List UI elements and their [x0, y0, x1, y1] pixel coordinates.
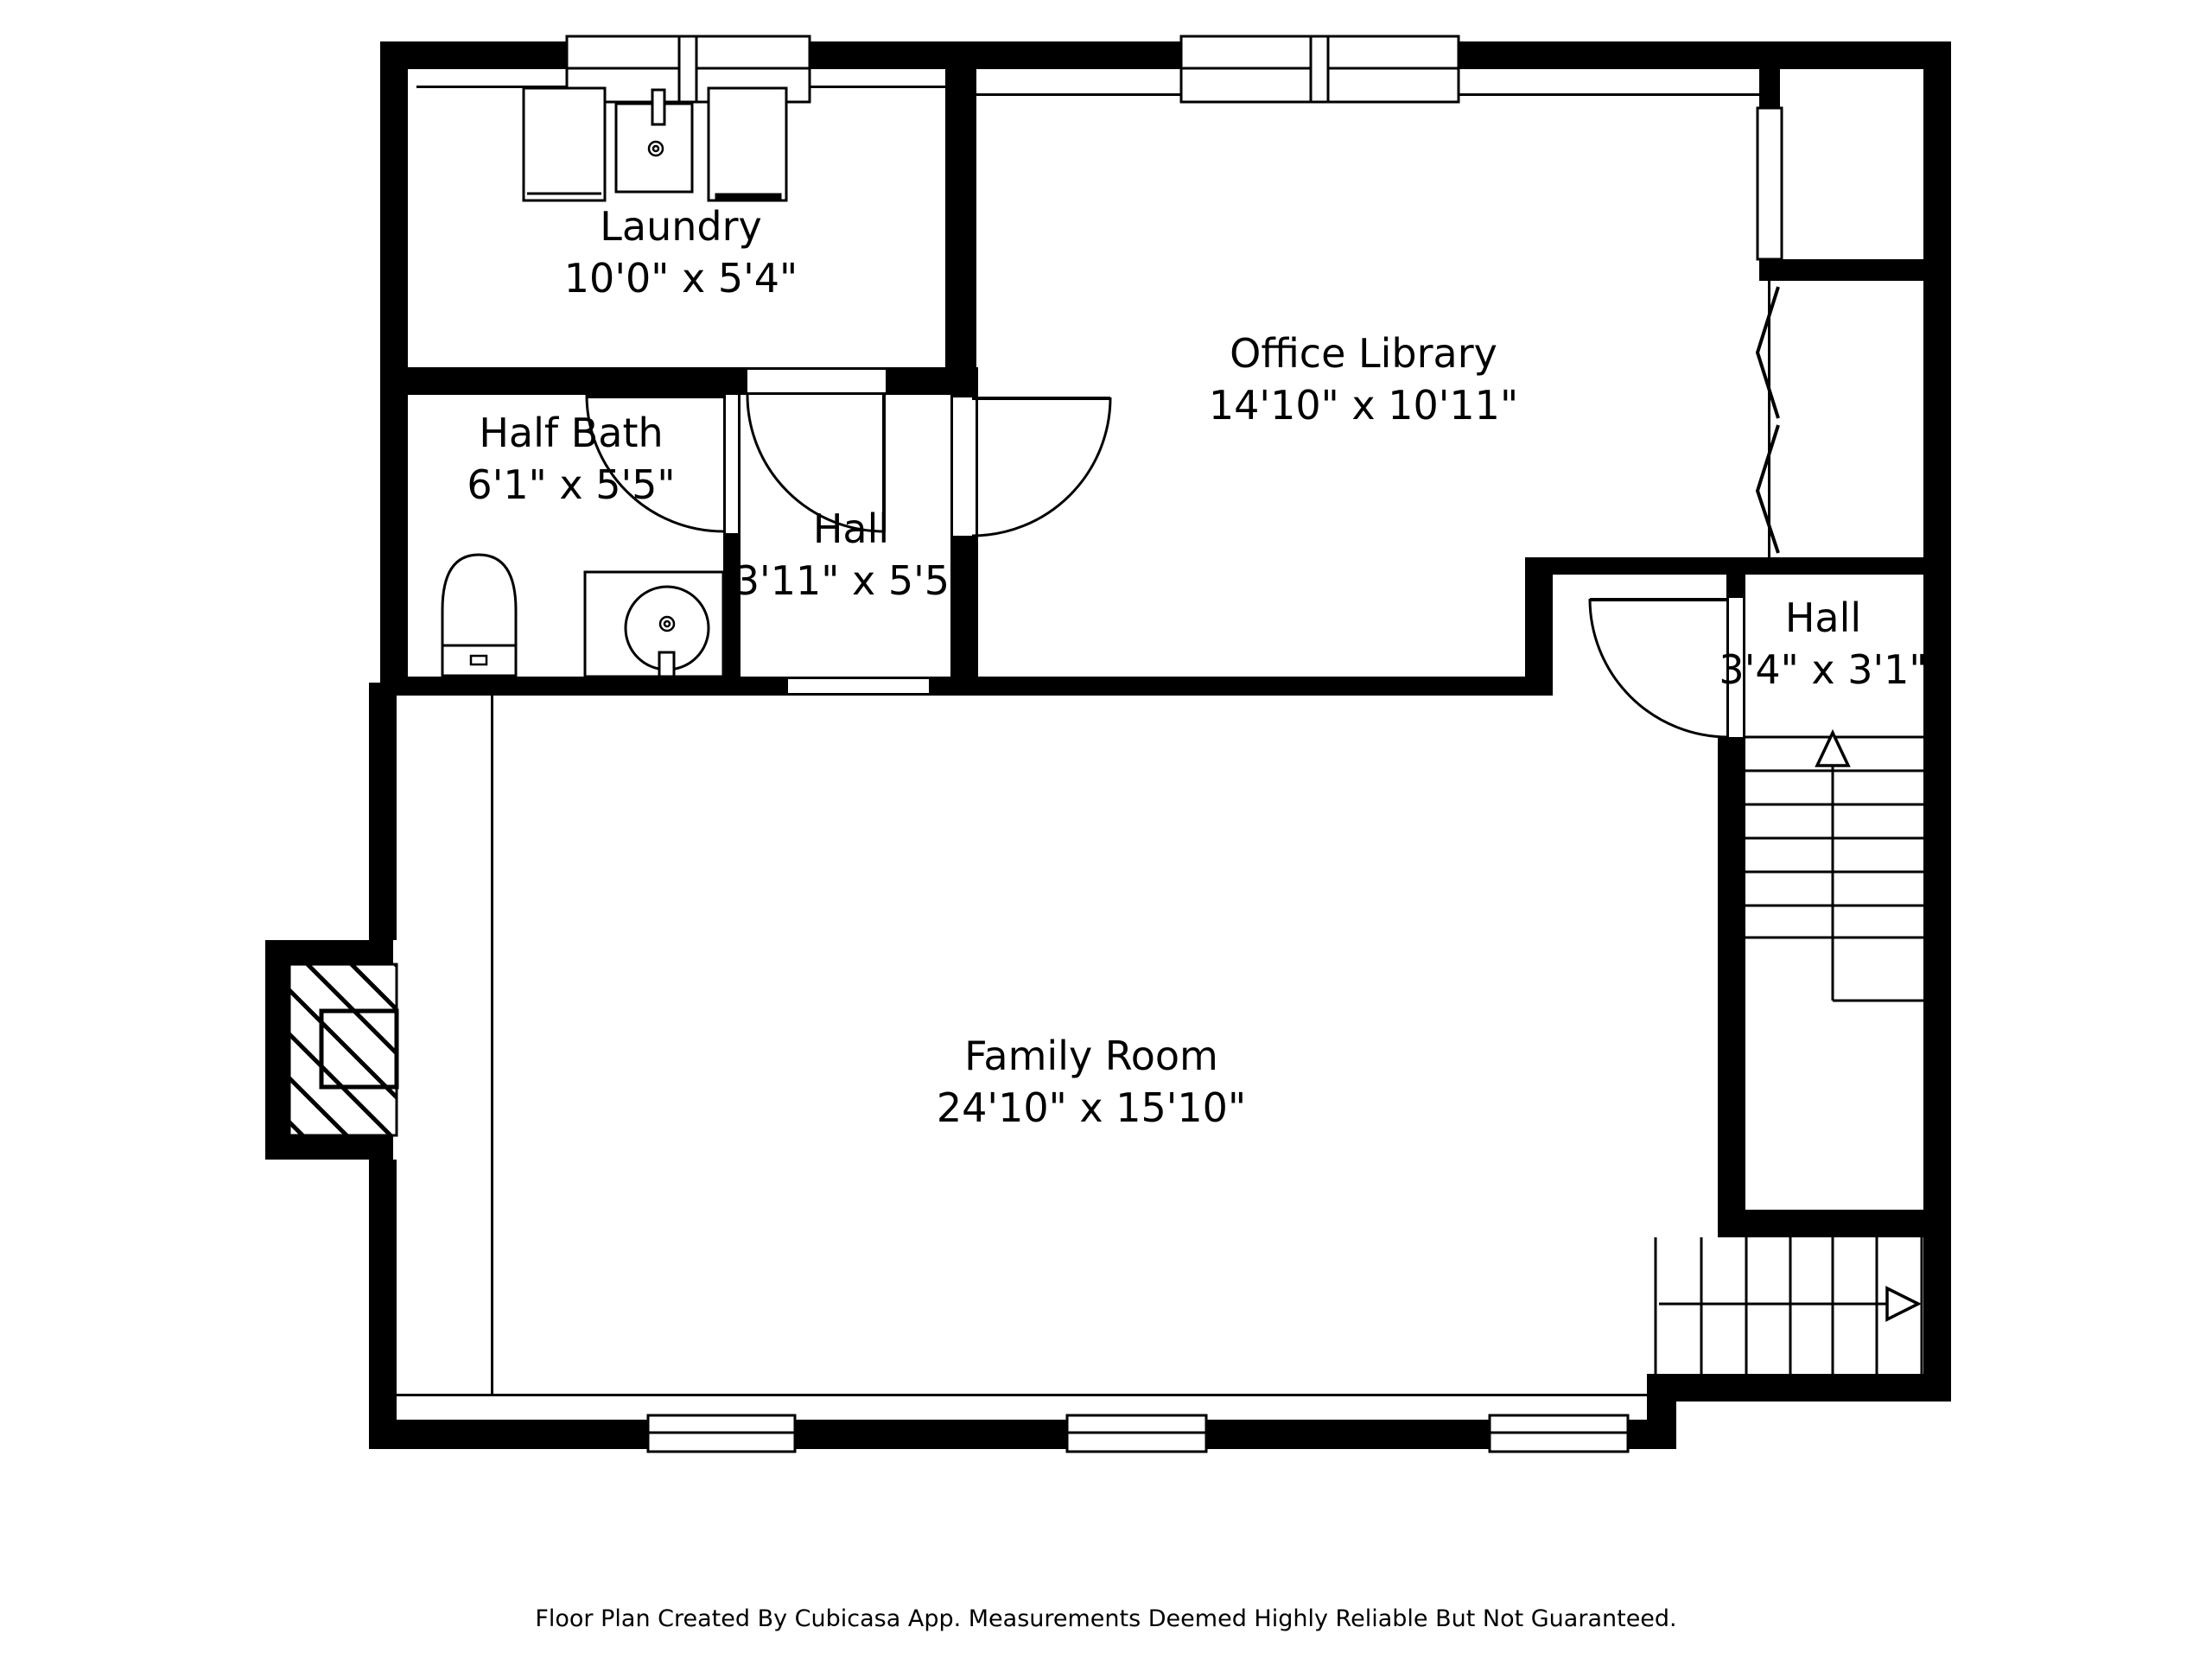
family-room-left-line [491, 696, 493, 1394]
wall-closet-left-top [1759, 69, 1780, 108]
room-dimensions: 24'10" x 15'10" [937, 1082, 1246, 1134]
toilet-icon [442, 555, 516, 676]
window-closet-right [1758, 108, 1782, 259]
wall-office-hallright [1525, 557, 1951, 575]
room-dimensions: 14'10" x 10'11" [1209, 379, 1518, 431]
wall-bottom-connector [1647, 1374, 1676, 1449]
wall-office-step [1525, 557, 1553, 696]
wall-stairs-left [1718, 737, 1745, 1237]
door-family-hallright [1590, 599, 1728, 737]
room-label-half-bath: Half Bath 6'1" x 5'5" [467, 407, 675, 511]
room-name: Half Bath [467, 407, 675, 459]
washer-icon [524, 88, 605, 200]
room-name: Family Room [937, 1030, 1246, 1082]
halfbath-door-jamb-left [723, 395, 726, 533]
wall-left-lower [369, 1160, 397, 1449]
room-dimensions: 3'4" x 3'1" [1719, 644, 1927, 696]
laundry-appliances [524, 88, 786, 200]
room-label-family-room: Family Room 24'10" x 15'10" [937, 1030, 1246, 1134]
wall-family-top-left [380, 677, 788, 696]
window-office [1181, 36, 1459, 102]
room-label-hall-center: Hall 3'11" x 5'5" [734, 503, 968, 607]
half-bath-fixtures [442, 555, 723, 677]
stairs-down [1656, 1237, 1922, 1374]
room-name: Laundry [564, 200, 798, 252]
room-label-hall-right: Hall 3'4" x 3'1" [1719, 592, 1927, 696]
hall-opening-edge-bottom [788, 693, 929, 696]
laundry-sink-icon [616, 90, 692, 192]
dryer-icon [709, 88, 786, 200]
fireplace [265, 940, 397, 1160]
window-family-1 [648, 1415, 795, 1452]
window-family-3 [1490, 1415, 1628, 1452]
footer-disclaimer: Floor Plan Created By Cubicasa App. Meas… [0, 1605, 2212, 1632]
wall-closet-divider [1759, 259, 1923, 281]
wall-family-top-right [929, 677, 1553, 696]
room-name: Hall [734, 503, 968, 555]
wall-left-mid [369, 683, 397, 940]
floor-plan-drawing [0, 0, 2212, 1659]
room-dimensions: 3'11" x 5'5" [734, 555, 968, 607]
window-family-2 [1067, 1415, 1206, 1452]
wall-right [1923, 41, 1951, 1402]
floor-plan: Laundry 10'0" x 5'4" Half Bath 6'1" x 5'… [0, 0, 2212, 1659]
stairs-up [1745, 733, 1923, 1001]
room-label-office-library: Office Library 14'10" x 10'11" [1209, 327, 1518, 431]
laundry-door-jamb-top [747, 367, 886, 370]
door-hall-office [972, 397, 1110, 536]
room-label-laundry: Laundry 10'0" x 5'4" [564, 200, 798, 304]
hall-opening-edge-top [788, 677, 929, 679]
office-door-jamb-right [976, 397, 978, 536]
wall-hall-office-top [950, 367, 978, 397]
wall-stairhall-bottom [1718, 1210, 1951, 1237]
stairs-down-arrow-icon [1887, 1288, 1918, 1319]
wall-laundry-bottom-left [380, 367, 747, 395]
room-dimensions: 6'1" x 5'5" [467, 459, 675, 511]
wall-bottom-stairs [1647, 1374, 1951, 1402]
fireplace-hearth [289, 964, 397, 1135]
room-dimensions: 10'0" x 5'4" [564, 252, 798, 304]
bathroom-sink-icon [585, 572, 723, 677]
room-name: Office Library [1209, 327, 1518, 379]
laundry-door-jamb-bottom [747, 392, 886, 395]
room-name: Hall [1719, 592, 1927, 644]
family-room-bottom-line [397, 1394, 1649, 1396]
wall-bottom-family [369, 1420, 1676, 1449]
wall-laundry-office [945, 69, 976, 367]
